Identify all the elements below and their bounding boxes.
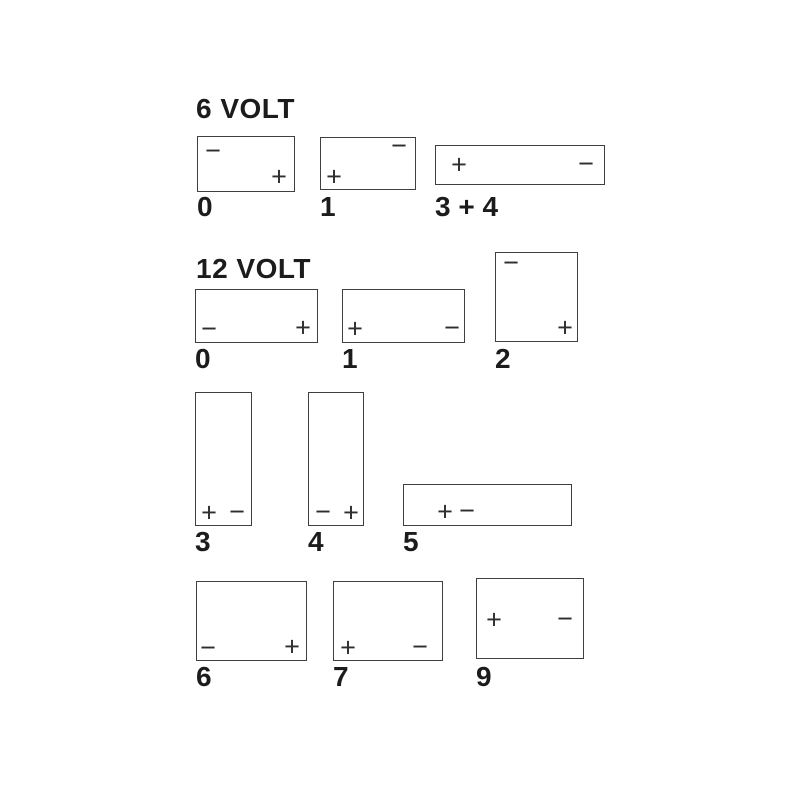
- negative-terminal-icon: −: [205, 138, 221, 165]
- positive-terminal-icon: +: [271, 164, 287, 191]
- battery-label-0: 0: [197, 193, 213, 221]
- negative-terminal-icon: −: [444, 315, 460, 342]
- positive-terminal-icon: +: [295, 315, 311, 342]
- battery-label-4: 4: [308, 528, 324, 556]
- negative-terminal-icon: −: [578, 151, 594, 178]
- negative-terminal-icon: −: [459, 498, 475, 525]
- negative-terminal-icon: −: [200, 635, 216, 662]
- positive-terminal-icon: +: [437, 499, 453, 526]
- battery-label-5: 5: [403, 528, 419, 556]
- positive-terminal-icon: +: [347, 316, 363, 343]
- negative-terminal-icon: −: [201, 316, 217, 343]
- battery-label-2: 2: [495, 345, 511, 373]
- positive-terminal-icon: +: [201, 500, 217, 527]
- positive-terminal-icon: +: [284, 634, 300, 661]
- battery-label-3: 3: [195, 528, 211, 556]
- battery-label-7: 7: [333, 663, 349, 691]
- battery-terminal-layout-diagram: 6 VOLT−+0−+1+−3 + 412 VOLT−+0+−1−+2+−3−+…: [0, 0, 800, 800]
- negative-terminal-icon: −: [391, 133, 407, 160]
- positive-terminal-icon: +: [326, 164, 342, 191]
- negative-terminal-icon: −: [315, 499, 331, 526]
- battery-label-9: 9: [476, 663, 492, 691]
- section-title-6-volt: 6 VOLT: [196, 95, 295, 123]
- battery-label-0: 0: [195, 345, 211, 373]
- section-title-12-volt: 12 VOLT: [196, 255, 311, 283]
- positive-terminal-icon: +: [451, 152, 467, 179]
- battery-label-1: 1: [342, 345, 358, 373]
- battery-label-1: 1: [320, 193, 336, 221]
- negative-terminal-icon: −: [229, 499, 245, 526]
- positive-terminal-icon: +: [343, 500, 359, 527]
- battery-label-3+4: 3 + 4: [435, 193, 498, 221]
- positive-terminal-icon: +: [557, 315, 573, 342]
- negative-terminal-icon: −: [503, 250, 519, 277]
- positive-terminal-icon: +: [340, 635, 356, 662]
- battery-outline-5: [403, 484, 572, 526]
- positive-terminal-icon: +: [486, 607, 502, 634]
- negative-terminal-icon: −: [557, 606, 573, 633]
- battery-label-6: 6: [196, 663, 212, 691]
- negative-terminal-icon: −: [412, 634, 428, 661]
